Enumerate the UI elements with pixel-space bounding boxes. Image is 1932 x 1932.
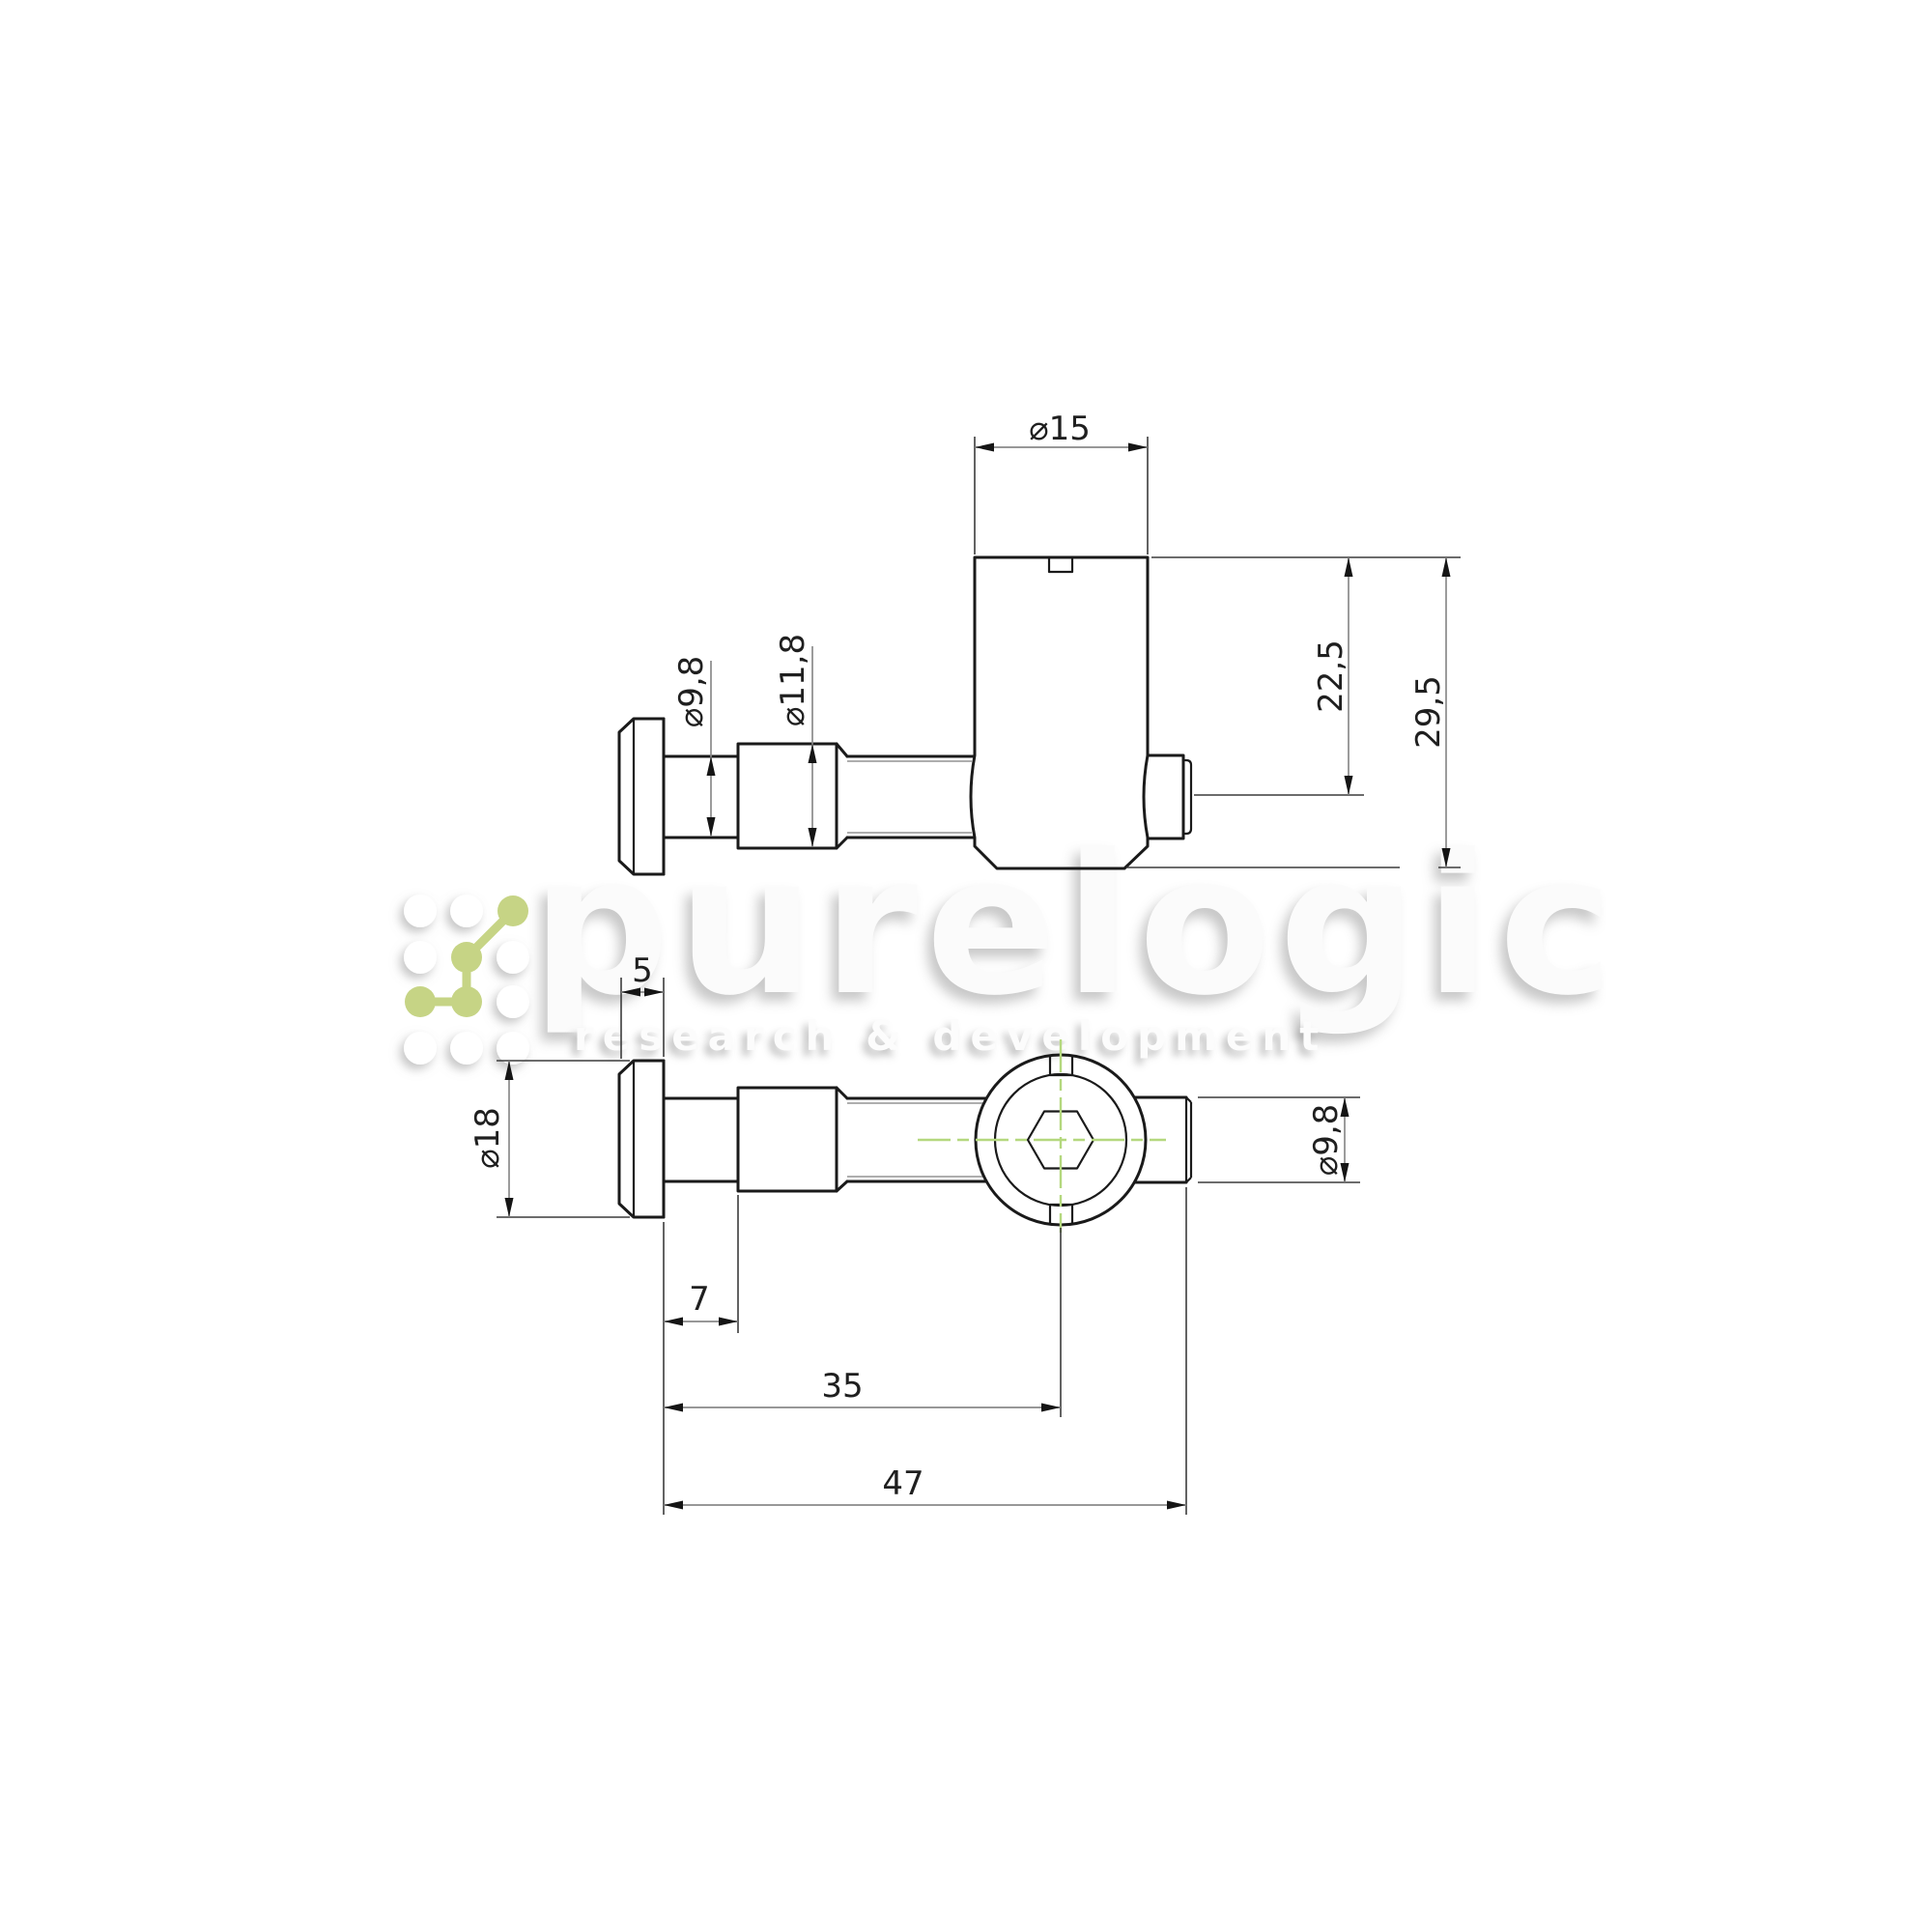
dim-label-diameter-11-8: ⌀11,8 <box>774 634 812 726</box>
drawing-canvas: purelogic research & development <box>0 0 1932 1932</box>
dim-label-diameter-18: ⌀18 <box>469 1107 507 1169</box>
dim-label-22-5: 22,5 <box>1312 639 1350 713</box>
dim-label-diameter-9-8-side: ⌀9,8 <box>1307 1104 1346 1177</box>
dim-label-5: 5 <box>632 952 653 990</box>
technical-drawing: ⌀15 ⌀9,8 ⌀11,8 22,5 29,5 <box>0 0 1932 1932</box>
dim-label-diameter-15: ⌀15 <box>1029 410 1091 448</box>
dim-label-29-5: 29,5 <box>1409 675 1448 749</box>
dim-label-47: 47 <box>882 1464 923 1503</box>
dim-label-diameter-9-8-top: ⌀9,8 <box>672 656 711 728</box>
dim-label-35: 35 <box>821 1367 863 1406</box>
top-view-dimensions: ⌀15 ⌀9,8 ⌀11,8 22,5 29,5 <box>672 410 1461 867</box>
dim-label-7: 7 <box>689 1280 710 1319</box>
bottom-view-dimensions: 5 ⌀18 7 35 47 <box>469 952 1360 1515</box>
